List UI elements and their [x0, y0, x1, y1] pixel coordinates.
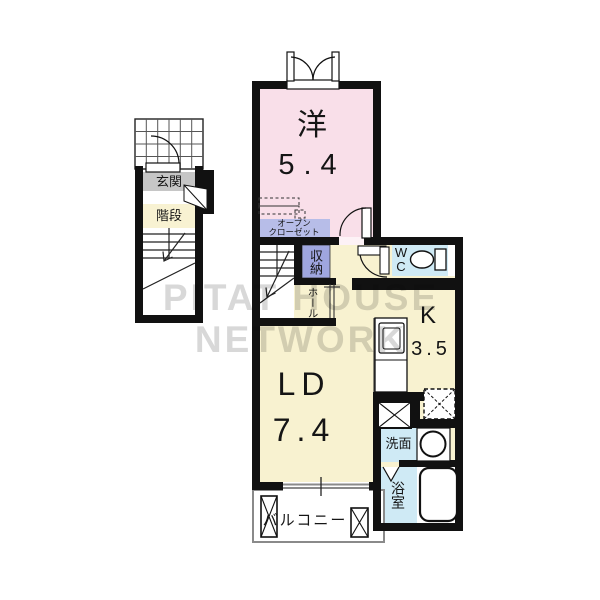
room-label-open-closet: オープン クローゼット	[257, 219, 331, 237]
room-label-entrance: 玄関	[142, 175, 196, 188]
wc-label-w: W	[393, 246, 409, 260]
room-label-washroom: 洗面	[380, 437, 417, 450]
washer-space-icon	[378, 402, 411, 428]
room-label-stairs: 階段	[142, 209, 196, 222]
room-label-balcony: バルコニー	[240, 513, 370, 528]
french-door-icon	[287, 52, 339, 89]
room-label-bathroom: 浴室	[391, 477, 405, 513]
room-label-living-dining: LD	[254, 368, 354, 400]
open-closet-line2: クローゼット	[257, 228, 331, 237]
refrigerator-space-icon	[424, 389, 455, 419]
washing-machine-icon	[417, 428, 450, 461]
room-label-storage: 収納	[309, 247, 322, 277]
room-area-living-dining: 7.4	[254, 414, 354, 446]
room-label-western: 洋	[282, 111, 342, 141]
wc-label-c: C	[393, 260, 409, 274]
floor-plan-page: 洋 5.4 LD 7.4 K 3.5 W C 洗面 浴室 収納 ホール オープン…	[0, 0, 600, 600]
room-label-wc: W C	[393, 246, 409, 274]
bathtub-icon	[420, 468, 457, 521]
watermark-text: PITAT HOUSE NETWORK	[55, 277, 547, 361]
toilet-icon	[411, 249, 447, 270]
room-area-western: 5.4	[272, 151, 352, 180]
